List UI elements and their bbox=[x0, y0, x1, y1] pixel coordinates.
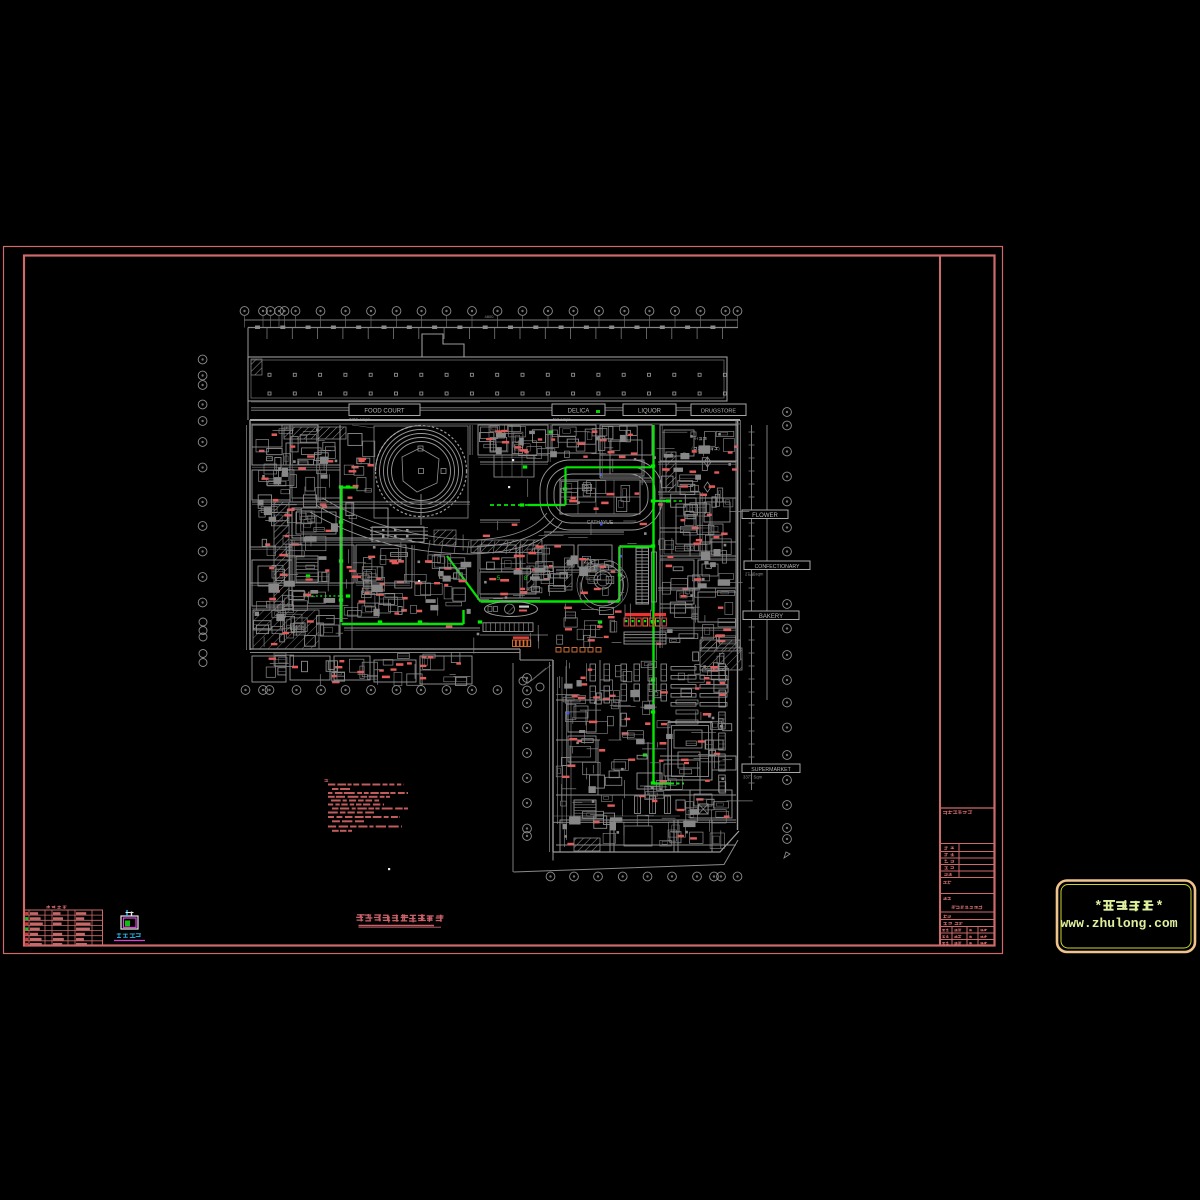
svg-text:LIQUOR: LIQUOR bbox=[638, 409, 662, 415]
svg-text:4800: 4800 bbox=[485, 314, 495, 319]
svg-text:SUPERMARKET: SUPERMARKET bbox=[751, 767, 791, 773]
svg-text:DRUGSTORE: DRUGSTORE bbox=[701, 409, 736, 415]
svg-text:BAKERY: BAKERY bbox=[759, 614, 783, 620]
svg-text::: : bbox=[328, 778, 329, 783]
svg-text:CONFECTIONARY: CONFECTIONARY bbox=[755, 564, 800, 570]
svg-text:*: * bbox=[1156, 900, 1164, 915]
svg-text:*: * bbox=[1094, 900, 1102, 915]
svg-text:FLOWER: FLOWER bbox=[752, 513, 778, 519]
svg-text:27.15sqm: 27.15sqm bbox=[745, 572, 764, 577]
svg-text:FOOD COURT: FOOD COURT bbox=[364, 409, 405, 415]
svg-text:3377 Sqm: 3377 Sqm bbox=[743, 775, 763, 780]
svg-text:DELICA: DELICA bbox=[568, 409, 590, 415]
svg-text:www.zhulong.com: www.zhulong.com bbox=[1060, 916, 1177, 931]
